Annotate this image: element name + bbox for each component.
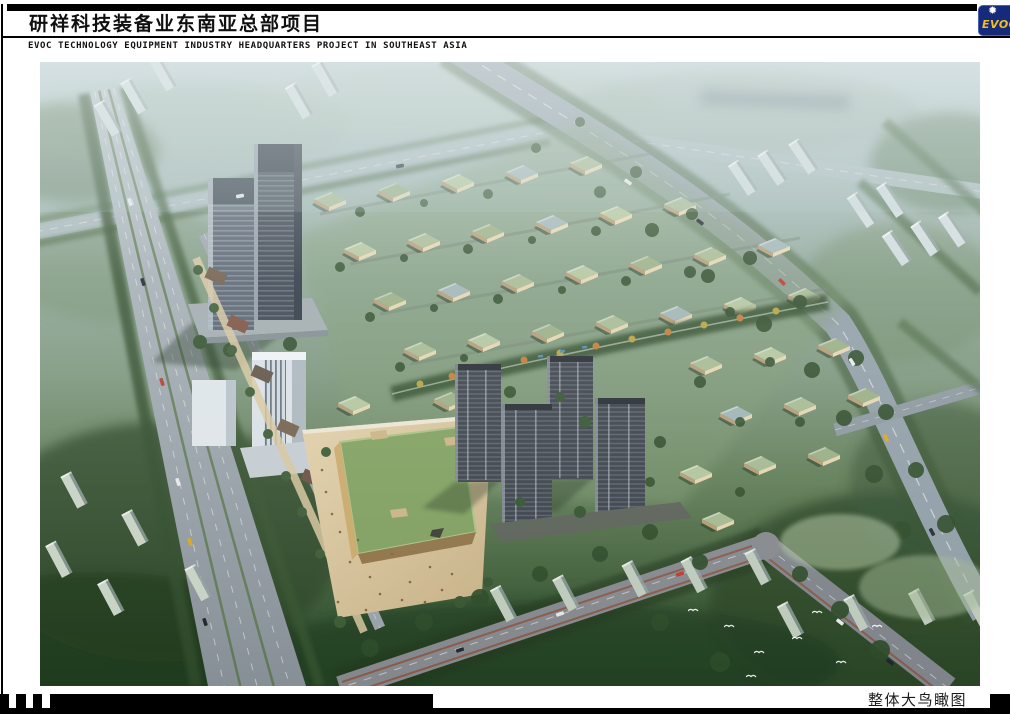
- aerial-rendering: [40, 62, 980, 686]
- footer-long-bar: [50, 694, 433, 709]
- evoc-logo: ✹ EVOC: [978, 5, 1010, 36]
- figure-caption: 整体大鸟瞰图: [868, 689, 967, 710]
- page-subtitle: EVOC TECHNOLOGY EQUIPMENT INDUSTRY HEADQ…: [28, 41, 467, 51]
- footer-barcode-bar: [16, 694, 26, 709]
- presentation-board: 研祥科技装备业东南亚总部项目 EVOC TECHNOLOGY EQUIPMENT…: [0, 0, 1010, 714]
- header-divider-rule: [1, 36, 1010, 38]
- left-frame-rule: [1, 4, 3, 708]
- horizon-haze-band: [40, 62, 980, 212]
- page-title: 研祥科技装备业东南亚总部项目: [29, 9, 323, 36]
- starburst-icon: ✹: [988, 4, 997, 18]
- footer-barcode-bar: [33, 694, 42, 709]
- aerial-rendering-figure: [40, 62, 980, 686]
- evoc-logo-text: EVOC: [982, 18, 1010, 31]
- footer-barcode-bar: [0, 694, 9, 709]
- footer-black-bar: [0, 708, 1010, 714]
